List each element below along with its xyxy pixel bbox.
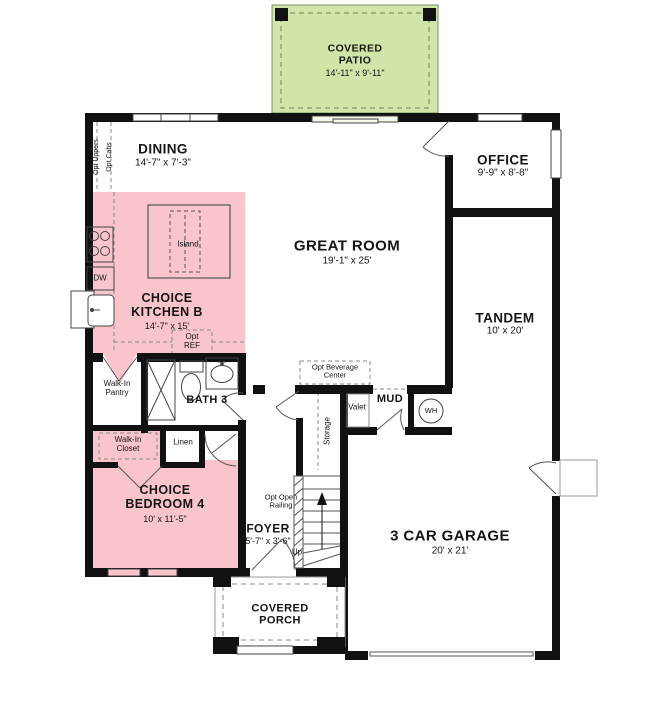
mud-label: MUD xyxy=(377,393,403,405)
great-room-label: GREAT ROOM xyxy=(294,239,400,256)
bath3-label: BATH 3 xyxy=(186,394,227,406)
patio-post xyxy=(423,8,436,21)
office-door xyxy=(423,121,449,156)
office-top-window xyxy=(478,114,522,121)
up-label: Up xyxy=(292,549,302,558)
garage-dims: 20' x 21' xyxy=(432,545,469,556)
patio-label: COVERED PATIO xyxy=(315,43,395,67)
patio-dims: 14'-11" x 9'-11" xyxy=(325,68,384,78)
bedroom-window xyxy=(108,569,140,576)
foyer-dims: 5'-7" x 3'-6" xyxy=(245,536,290,546)
porch-label: COVERED PORCH xyxy=(240,603,320,628)
linen-label: Linen xyxy=(173,439,193,448)
mud-door xyxy=(377,409,404,430)
island-label: Island xyxy=(177,241,198,250)
bath-fixtures xyxy=(147,358,238,420)
opt-uppers-label: Opt Uppers xyxy=(93,139,101,175)
floor-plan-drawing xyxy=(0,0,654,703)
dining-dims: 14'-7" x 7'-3" xyxy=(135,157,191,168)
porch-post xyxy=(327,575,345,587)
tandem-label: TANDEM xyxy=(475,310,534,325)
dining-window xyxy=(133,114,218,121)
dishwasher-label: DW xyxy=(93,275,106,284)
foyer-label: FOYER xyxy=(246,522,289,535)
office-side-window xyxy=(551,130,561,178)
wh-label: WH xyxy=(425,407,438,415)
tandem-dims: 10' x 20' xyxy=(487,325,524,336)
bedroom-window xyxy=(148,569,177,576)
pantry-label: Walk-In Pantry xyxy=(92,380,142,398)
front-door-opening xyxy=(250,568,296,577)
office-dims: 9'-9" x 8'-8" xyxy=(478,167,528,178)
valet-label: Valet xyxy=(348,404,366,413)
porch-post xyxy=(213,575,231,587)
toilet-icon xyxy=(180,361,203,372)
kitchen-dims: 14'-7" x 15' xyxy=(145,321,189,331)
storage-label: Storage xyxy=(324,417,333,445)
garage-side-door xyxy=(529,462,556,494)
porch-step xyxy=(237,646,293,654)
bedroom-dims: 10' x 11'-5" xyxy=(143,514,187,524)
opt-open-railing-label: Opt Open Railing xyxy=(264,494,298,511)
floor-plan: COVERED PATIO 14'-11" x 9'-11" DINING 14… xyxy=(0,0,654,703)
garage-label: 3 CAR GARAGE xyxy=(390,529,510,546)
patio-post xyxy=(275,8,288,21)
up-arrow-icon xyxy=(317,492,327,505)
kitchen-label: CHOICE KITCHEN B xyxy=(117,291,217,319)
garage-side-step xyxy=(560,460,597,496)
storage-door xyxy=(276,391,299,420)
office-label: OFFICE xyxy=(477,152,529,167)
opt-beverage-label: Opt Beverage Center xyxy=(302,364,368,381)
great-room-dims: 19'-1" x 25' xyxy=(322,255,371,266)
bedroom-label: CHOICE BEDROOM 4 xyxy=(105,483,225,511)
garage-door xyxy=(370,652,533,656)
opt-ref-label: Opt REF xyxy=(178,333,206,351)
dining-label: DINING xyxy=(138,141,188,156)
closet-label: Walk-In Closet xyxy=(105,436,151,454)
opt-cabs-label: Opt Cabs xyxy=(106,142,114,172)
